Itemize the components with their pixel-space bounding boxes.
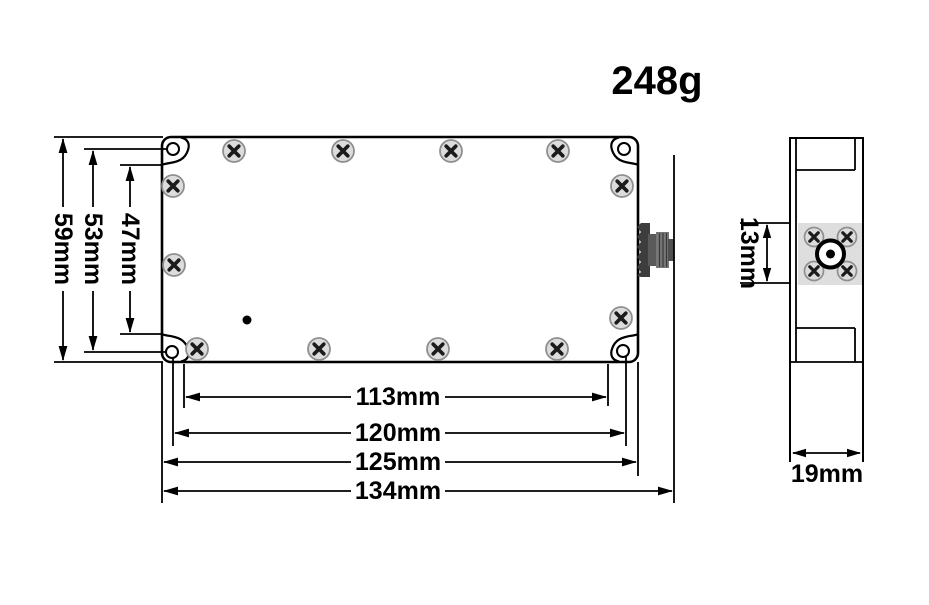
side-view: [790, 138, 863, 462]
dim-depth: 19mm: [791, 460, 863, 488]
sma-connector: [637, 223, 674, 277]
dim-width-overall: 134mm: [355, 477, 441, 505]
screw-icon: [162, 175, 184, 197]
indicator-dot: [243, 316, 252, 325]
coax-pin: [826, 250, 835, 259]
dim-height-overall: 59mm: [49, 213, 77, 285]
dim-height-holes: 53mm: [79, 213, 107, 285]
screw-icon: [308, 338, 330, 360]
screw-icon: [611, 175, 633, 197]
screw-icon: [610, 307, 632, 329]
dimension-drawing: 248g 59mm 53mm 47mm 113mm 120mm 125mm 13…: [0, 0, 929, 605]
connector-collar: [648, 234, 656, 266]
screw-icon: [546, 338, 568, 360]
hole-bottom-right: [617, 345, 629, 357]
dim-flange-height: 13mm: [735, 217, 763, 289]
dim-height-inner: 47mm: [116, 213, 144, 285]
screw-icon: [427, 338, 449, 360]
hole-top-right: [618, 143, 630, 155]
screw-icon: [186, 338, 208, 360]
screw-icon: [547, 140, 569, 162]
side-outline: [790, 138, 863, 462]
screw-icon: [223, 140, 245, 162]
module-body-outline: [162, 137, 638, 362]
screw-icon: [440, 140, 462, 162]
weight-label: 248g: [611, 59, 702, 103]
hole-bottom-left: [166, 346, 178, 358]
dim-width-body: 125mm: [355, 448, 441, 476]
screw-icon: [163, 254, 185, 276]
front-view: [162, 137, 674, 362]
dim-width-inner: 113mm: [356, 383, 441, 411]
hole-top-left: [167, 143, 179, 155]
dim-width-holes: 120mm: [355, 419, 441, 447]
drawing-canvas: 248g 59mm 53mm 47mm 113mm 120mm 125mm 13…: [0, 0, 929, 605]
screw-icon: [332, 140, 354, 162]
